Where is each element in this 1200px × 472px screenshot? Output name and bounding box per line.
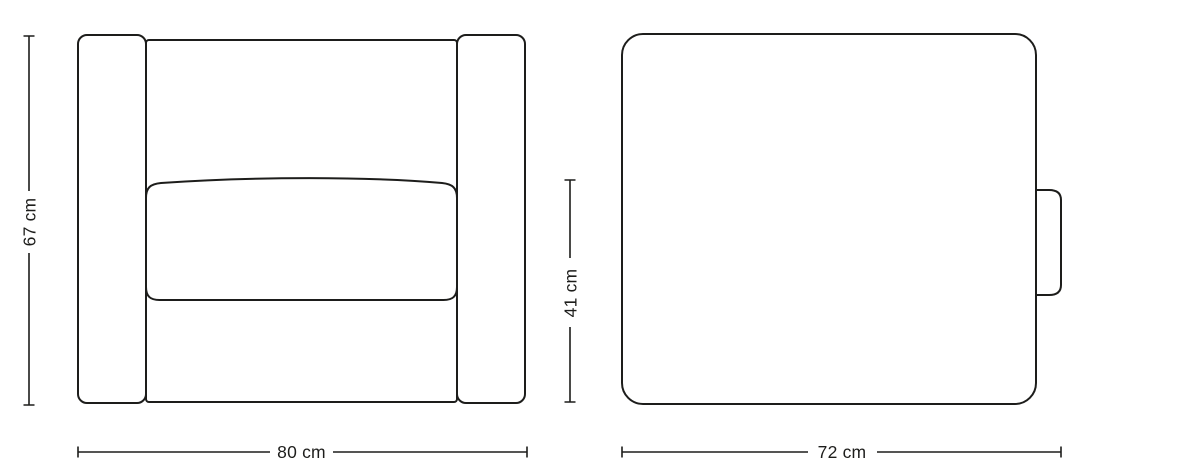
side-profile-outline [622, 34, 1036, 404]
height-dimension: 67 cm [20, 36, 40, 405]
width-dimension: 80 cm [78, 442, 527, 462]
width-dimension-label: 80 cm [277, 442, 326, 462]
seat-height-dimension-label: 41 cm [561, 269, 581, 318]
depth-dimension-label: 72 cm [818, 442, 867, 462]
height-dimension-label: 67 cm [20, 198, 40, 247]
side-tab [1036, 190, 1061, 295]
right-armrest [457, 35, 525, 403]
armchair-front-view [78, 35, 525, 403]
left-armrest [78, 35, 146, 403]
armchair-side-view [622, 34, 1061, 404]
seat-height-dimension: 41 cm [561, 180, 581, 402]
seat-cushion [146, 178, 457, 300]
furniture-dimensions-diagram: 67 cm 80 cm 41 cm 72 cm [0, 0, 1200, 472]
depth-dimension: 72 cm [622, 442, 1061, 462]
diagram-svg: 67 cm 80 cm 41 cm 72 cm [0, 0, 1200, 472]
